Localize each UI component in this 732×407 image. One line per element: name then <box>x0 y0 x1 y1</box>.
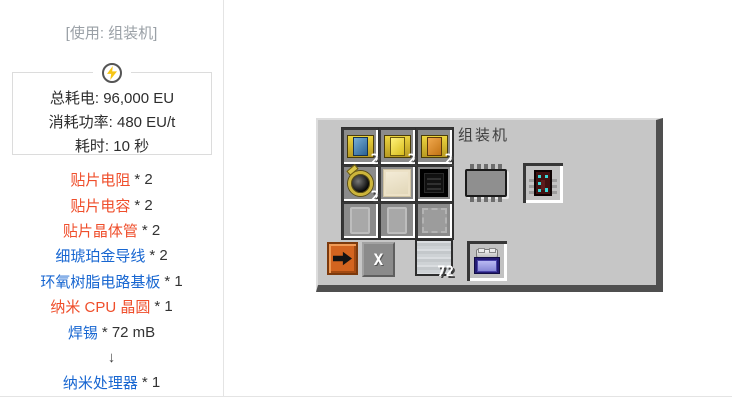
input-slot-smd-blue[interactable]: 2 <box>342 128 378 164</box>
nano-processor-item <box>534 170 552 196</box>
chip-progress-icon <box>465 169 507 197</box>
usage-header: [使用: 组装机] <box>0 22 223 43</box>
input-slot-empty-2[interactable] <box>379 202 415 238</box>
assembler-gui-panel: 组装机 2 2 2 2 <box>316 118 663 292</box>
ingredient-qty: * 1 <box>154 298 172 315</box>
ghost-chip-icon <box>422 208 447 233</box>
ingredient-link[interactable]: 贴片晶体管 <box>63 220 138 241</box>
list-item: 纳米处理器* 1 <box>0 370 223 395</box>
input-slot-fine-wire[interactable]: 2 <box>342 165 378 201</box>
list-item: 细琥珀金导线* 2 <box>0 243 223 268</box>
ghost-circuit-board-icon <box>387 207 407 234</box>
result-link[interactable]: 纳米处理器 <box>63 372 138 393</box>
list-item: 纳米 CPU 晶圆* 1 <box>0 294 223 319</box>
battery-icon <box>474 249 500 274</box>
output-slot[interactable] <box>523 163 563 203</box>
ingredient-qty: * 1 <box>164 273 182 290</box>
jei-recipe-screen: [使用: 组装机] 总耗电: 96,000 EU 消耗功率: 480 EU/t … <box>0 0 732 407</box>
bottom-divider <box>0 396 732 397</box>
input-slot-smd-yellow[interactable]: 2 <box>379 128 415 164</box>
input-slot-epoxy-board[interactable] <box>379 165 415 201</box>
ingredient-qty: * 1 <box>142 374 160 391</box>
ingredient-link[interactable]: 贴片电容 <box>70 195 130 216</box>
battery-slot[interactable] <box>467 241 507 281</box>
ghost-circuit-board-icon <box>350 207 370 234</box>
recipe-transfer-button[interactable] <box>327 242 358 275</box>
ingredient-qty: * 2 <box>134 171 152 188</box>
ingredient-qty: * 2 <box>149 247 167 264</box>
clear-button-label: X <box>374 250 384 269</box>
smd-component-blue-item <box>347 135 374 158</box>
ingredient-link[interactable]: 贴片电阻 <box>70 169 130 190</box>
ingredient-qty: * 2 <box>134 197 152 214</box>
clear-button[interactable]: X <box>362 242 395 277</box>
ingredient-qty: * 2 <box>142 222 160 239</box>
result-arrow: ↓ <box>0 345 223 370</box>
smd-component-yellow-item <box>384 135 411 158</box>
ingredient-list: 贴片电阻* 2 贴片电容* 2 贴片晶体管* 2 细琥珀金导线* 2 环氧树脂电… <box>0 167 223 396</box>
machine-title: 组装机 <box>458 124 509 145</box>
input-slot-empty-1[interactable] <box>342 202 378 238</box>
solder-fluid <box>417 241 451 274</box>
input-slot-smd-orange[interactable]: 2 <box>416 128 452 164</box>
lightning-icon <box>102 63 122 83</box>
list-item: 贴片电阻* 2 <box>0 167 223 192</box>
list-item: 环氧树脂电路基板* 1 <box>0 269 223 294</box>
input-slot-empty-3[interactable] <box>416 202 452 238</box>
solder-fluid-slot[interactable]: 72 <box>415 239 453 276</box>
energy-total: 总耗电: 96,000 EU <box>13 87 211 111</box>
input-slot-grid: 2 2 2 2 <box>341 127 454 240</box>
ingredient-link[interactable]: 焊锡 <box>68 322 98 343</box>
epoxy-circuit-board-item <box>383 169 411 197</box>
input-slot-nano-wafer[interactable] <box>416 165 452 201</box>
fine-electrum-wire-item <box>348 171 373 196</box>
smd-component-orange-item <box>421 135 448 158</box>
arrow-right-icon <box>333 251 352 267</box>
ingredient-link[interactable]: 环氧树脂电路基板 <box>40 271 160 292</box>
list-item: 焊锡* 72 mB <box>0 319 223 344</box>
ingredient-link[interactable]: 纳米 CPU 晶圆 <box>50 296 150 317</box>
energy-panel: 总耗电: 96,000 EU 消耗功率: 480 EU/t 耗时: 10 秒 <box>12 72 212 155</box>
ingredient-link[interactable]: 细琥珀金导线 <box>55 245 145 266</box>
recipe-sidebar: [使用: 组装机] 总耗电: 96,000 EU 消耗功率: 480 EU/t … <box>0 0 224 396</box>
down-arrow-icon: ↓ <box>108 349 116 366</box>
ingredient-qty: * 72 mB <box>102 324 155 341</box>
list-item: 贴片电容* 2 <box>0 192 223 217</box>
list-item: 贴片晶体管* 2 <box>0 218 223 243</box>
energy-icon-wrap <box>93 62 131 84</box>
energy-time: 耗时: 10 秒 <box>13 135 211 159</box>
nano-cpu-wafer-item <box>420 169 448 197</box>
energy-rate: 消耗功率: 480 EU/t <box>13 111 211 135</box>
